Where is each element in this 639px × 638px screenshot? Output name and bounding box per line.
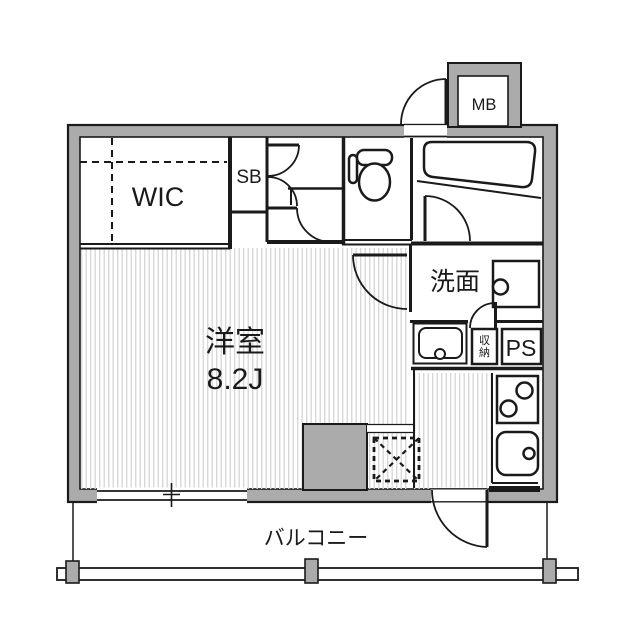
toilet-icon xyxy=(359,164,390,201)
storage-label-char1: 収 xyxy=(479,334,490,347)
meter-box-label: MB xyxy=(472,96,497,114)
stove-burner-2-icon xyxy=(501,401,517,417)
pipe-space-label: PS xyxy=(506,335,537,361)
balcony-post-left xyxy=(66,561,79,583)
main-room-name-label: 洋室 xyxy=(205,326,265,359)
washroom-label: 洗面 xyxy=(430,268,480,296)
washbasin-faucet-icon xyxy=(493,280,508,295)
kitchen-counter-bar xyxy=(489,486,540,492)
storage-label-char2: 納 xyxy=(479,346,490,359)
balcony-post-right xyxy=(543,559,556,583)
kitchen-floor xyxy=(414,373,491,489)
balcony-post-middle xyxy=(305,559,318,583)
washing-machine-drain-icon xyxy=(435,349,445,359)
threshold xyxy=(367,424,413,433)
pillar xyxy=(303,424,367,490)
floorplan-canvas: MB WIC SB 洗面 xyxy=(0,0,639,638)
toilet-handle xyxy=(349,155,357,183)
wic-label: WIC xyxy=(132,182,184,212)
kitchen-faucet-icon xyxy=(524,448,535,459)
stove-burner-1-icon xyxy=(517,383,533,399)
balcony-label: バルコニー xyxy=(264,527,369,550)
main-room-size-label: 8.2J xyxy=(207,363,264,396)
floorplan-svg: MB WIC SB 洗面 xyxy=(0,0,639,638)
shoe-box-label: SB xyxy=(236,167,261,188)
